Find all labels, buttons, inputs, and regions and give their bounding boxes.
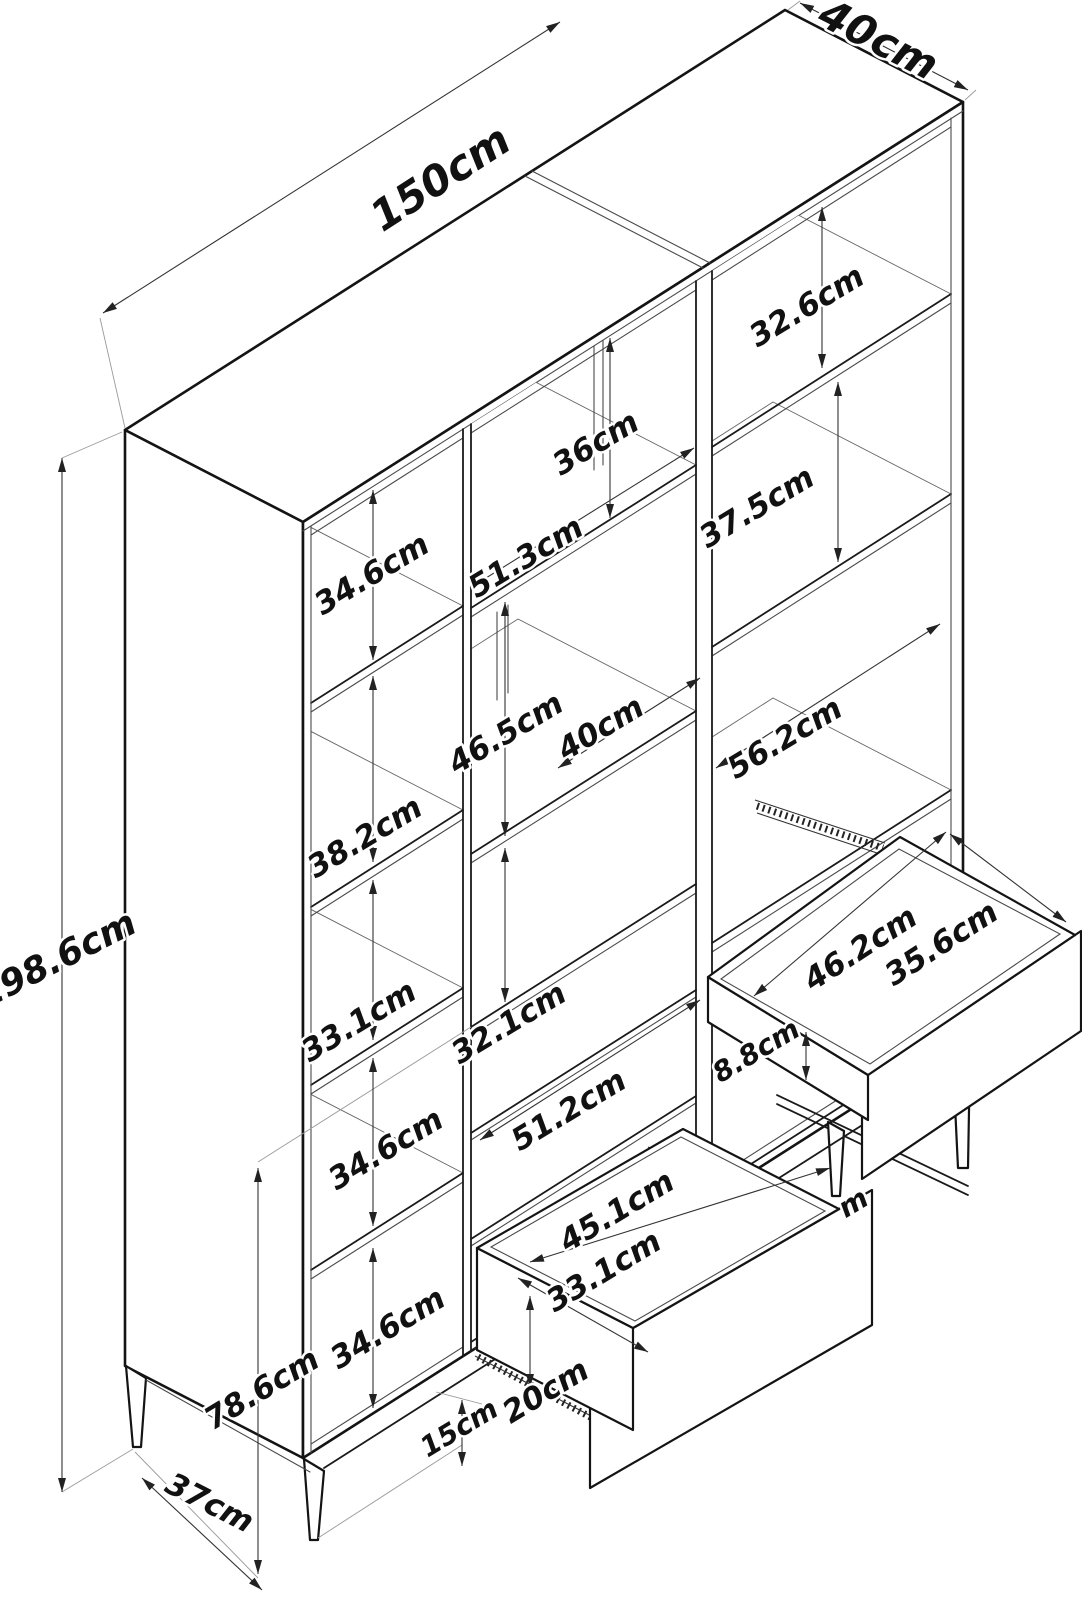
dim-label-base-depth: 37cm — [160, 1466, 260, 1541]
dim-label-total-height: 198.6cm — [0, 902, 143, 1017]
leg-mid-right — [828, 1122, 844, 1196]
diagram-canvas: 150cm 40cm 198.6cm 32.6cm 36cm 34.6cm 51… — [0, 0, 1082, 1600]
leg-back-left — [126, 1366, 146, 1447]
leg-front-left — [304, 1459, 324, 1540]
isometric-cabinet-diagram: 150cm 40cm 198.6cm 32.6cm 36cm 34.6cm 51… — [0, 0, 1082, 1600]
left-side-face — [125, 430, 303, 1458]
